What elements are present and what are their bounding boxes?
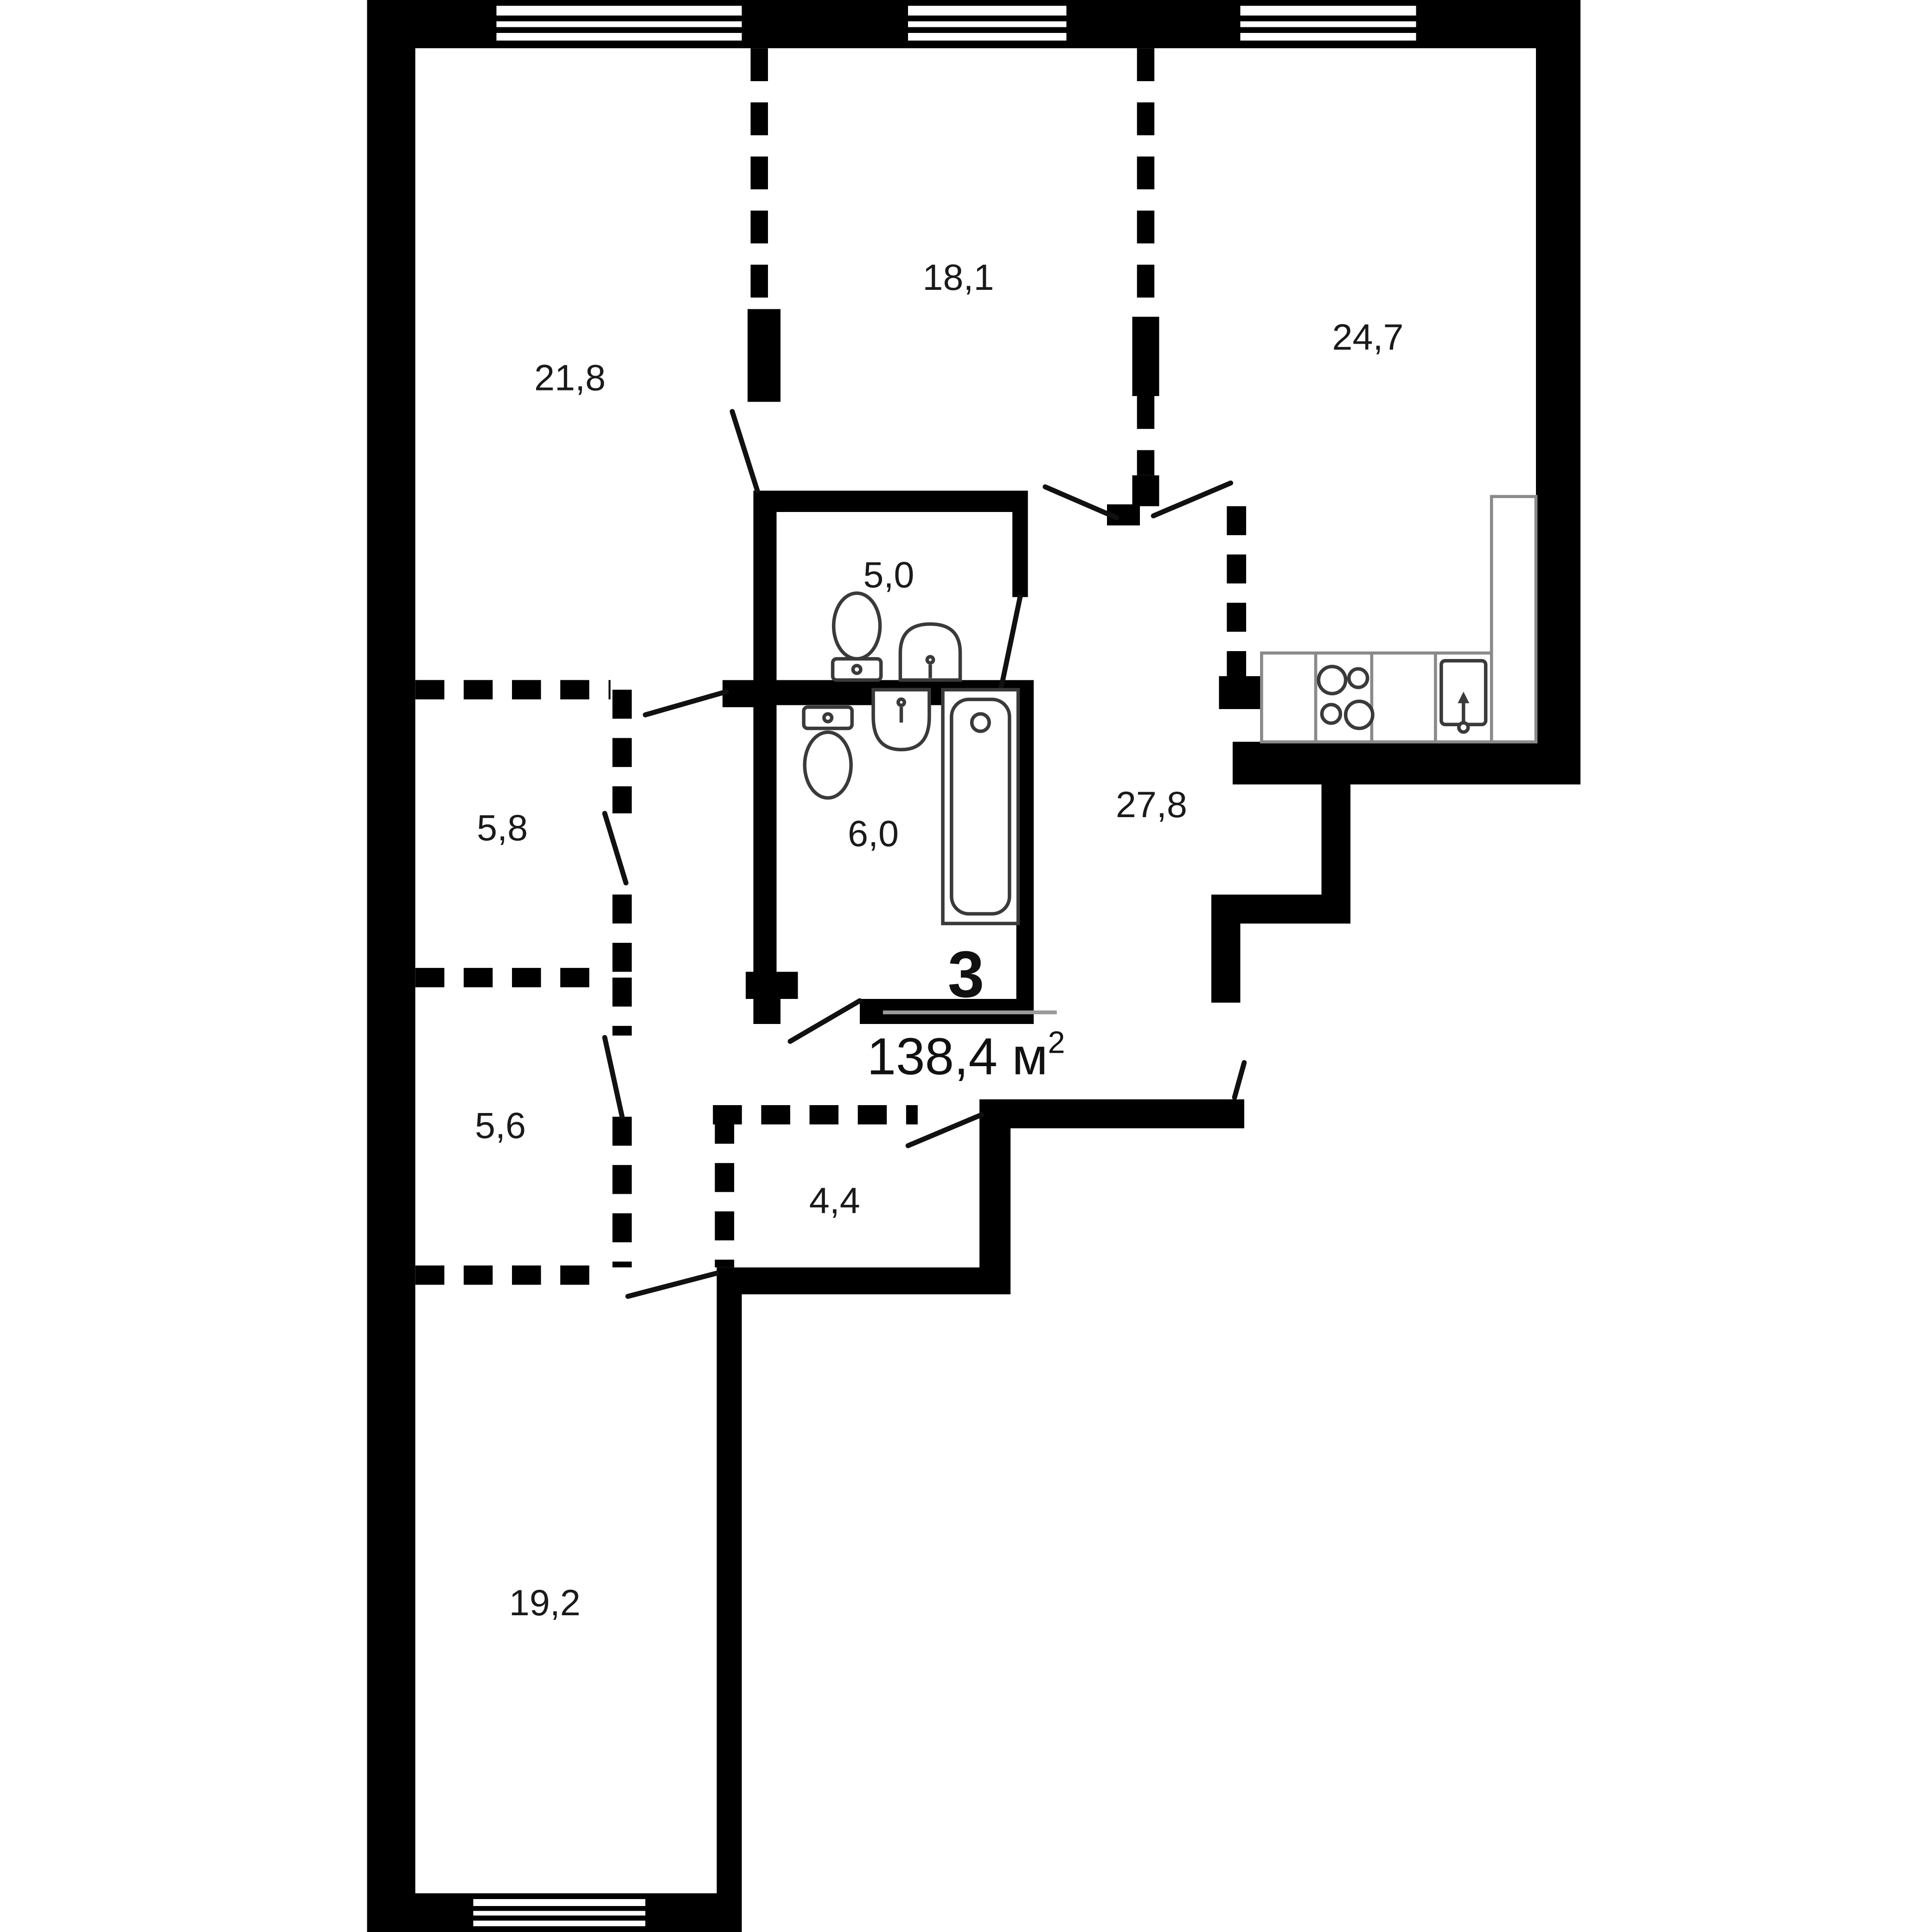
wall-jamb-partition-2-tip: [1132, 475, 1159, 506]
area-label-wc: 5,0: [863, 554, 914, 595]
area-label-kitchen-living: 24,7: [1332, 316, 1404, 358]
apartment-number: 3: [948, 938, 985, 1011]
door-swing-icon-storage: [908, 1115, 981, 1146]
wall-right: [1536, 0, 1580, 784]
window-icon-top-1: [497, 6, 742, 40]
toilet-icon-wc: [833, 593, 881, 680]
door-swing-icon-entrance: [1235, 1062, 1244, 1097]
wall-top-segment-1: [742, 0, 908, 48]
wall-entrance: [979, 1099, 1244, 1128]
bathtub-icon: [943, 690, 1018, 923]
wall-entry-step-c: [1211, 895, 1240, 1003]
apartment-summary: 3 138,4 м2: [867, 938, 1065, 1086]
area-label-closet-lower: 5,6: [475, 1105, 526, 1146]
area-label-closet-upper: 5,8: [477, 807, 528, 848]
kitchen-cabinet: [1491, 497, 1536, 742]
sink-icon-wc: [900, 624, 960, 680]
apartment-total-area: 138,4 м2: [867, 1025, 1065, 1085]
dashed-partitions: [416, 48, 1237, 1275]
area-label-storage: 4,4: [809, 1180, 860, 1221]
door-swing-icon-room1: [732, 411, 757, 491]
wall-jamb-partition-1: [748, 309, 780, 402]
wall-jamb-partition-2: [1132, 317, 1159, 396]
wall-wc-top: [754, 491, 1028, 512]
wall-room-bottom-right: [717, 1273, 742, 1932]
wall-left: [367, 0, 416, 1932]
window-icon-top-3: [1241, 6, 1416, 40]
total-area-unit: м: [998, 1027, 1048, 1085]
door-swing-icon-room2: [1045, 487, 1117, 518]
kitchen-sink-icon: [1441, 661, 1486, 732]
area-label-room-top-left: 21,8: [534, 357, 606, 398]
door-swing-icon-bathroom: [790, 1001, 860, 1041]
wall-top-corner-left: [367, 0, 497, 48]
area-label-room-top-middle: 18,1: [922, 256, 994, 298]
area-label-bathroom: 6,0: [848, 813, 899, 854]
wall-kitchen-bottom: [1233, 742, 1580, 785]
door-swing-icon-closet-upper-side: [605, 813, 626, 883]
window-icon-top-2: [908, 6, 1067, 40]
sink-icon-bathroom: [873, 690, 929, 749]
wall-wc-right-upper: [1012, 512, 1028, 597]
wall-wc-left: [754, 491, 777, 705]
area-label-room-bottom: 19,2: [509, 1582, 581, 1623]
area-label-hallway: 27,8: [1116, 784, 1187, 825]
door-swing-icon-room-bottom: [628, 1273, 717, 1296]
toilet-icon-bathroom: [804, 707, 852, 798]
door-swing-icon-closet-upper: [645, 691, 726, 715]
door-swing-icon-room3: [1153, 483, 1231, 516]
wall-bath-bottom-left: [754, 999, 780, 1024]
total-area-superscript: 2: [1048, 1025, 1065, 1060]
wall-kitchen-dash-tip: [1219, 676, 1262, 709]
door-swing-icon-wc: [1001, 597, 1020, 690]
wall-storage-bottom: [717, 1267, 1011, 1294]
wall-top-segment-2: [1067, 0, 1241, 48]
window-icon-bottom: [473, 1899, 646, 1926]
door-swing-icon-closet-lower-side: [605, 1037, 622, 1117]
total-area-value: 138,4: [867, 1027, 997, 1085]
door-swings: [605, 411, 1244, 1296]
room-area-labels: 21,8 18,1 24,7 5,0 5,8 6,0 27,8 5,6 4,4 …: [475, 256, 1404, 1623]
floor-plan-page: 21,8 18,1 24,7 5,0 5,8 6,0 27,8 5,6 4,4 …: [0, 0, 1932, 1932]
wall-bath-corner-block: [746, 972, 798, 998]
floor-plan-svg: 21,8 18,1 24,7 5,0 5,8 6,0 27,8 5,6 4,4 …: [0, 0, 1932, 1932]
